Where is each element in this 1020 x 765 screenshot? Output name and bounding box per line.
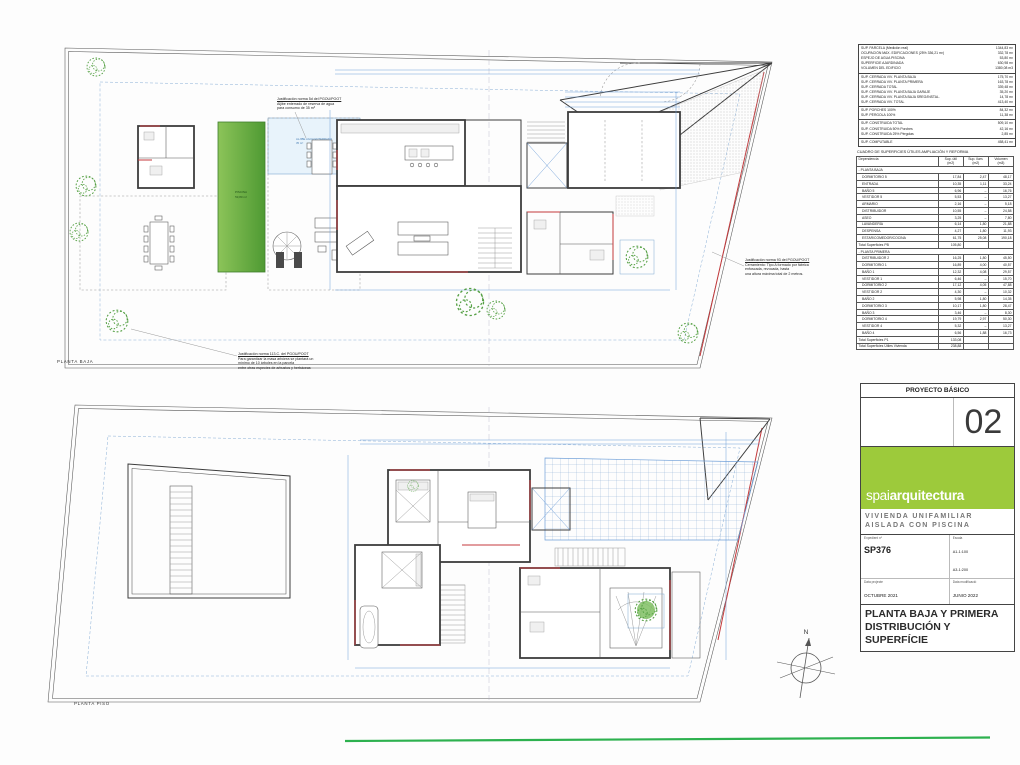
areas-row: VESTIDOR 45,32–13,27 (857, 323, 1014, 330)
note-trees-body: Para garantizar la masa arbórea se plant… (238, 357, 313, 370)
logo-light: spai (866, 488, 890, 503)
note-pool-body: Aljibe enterrado de reserva de agua para… (277, 102, 334, 111)
summary-table: SUP. PARCELA (Medición real)1344,83 m²OC… (858, 44, 1016, 147)
areas-row: ESTAR/COMEDOR/COCINA61,7525,08190,18 (857, 235, 1014, 242)
areas-row: BAÑO 46,561,8816,73 (857, 330, 1014, 337)
areas-table-head: DependenciaSup. útil (m2)Sup. ilum. (m2)… (857, 156, 1014, 167)
areas-row: VESTIDOR 16,46–15,70 (857, 275, 1014, 282)
note-fence: Justificación norma 93 del PGOU/POOT Cer… (745, 258, 860, 277)
areas-row: BAÑO 56,96–16,76 (857, 187, 1014, 194)
sheet-number-cell: 02 (861, 398, 1014, 447)
areas-row: ARMARIO2,16–5,18 (857, 201, 1014, 208)
areas-row: BAÑO 112,324,0829,57 (857, 269, 1014, 276)
areas-row: BAÑO 33,46–8,30 (857, 309, 1014, 316)
bed (396, 480, 430, 522)
title-block-fields: Expedient nº SP376 Escala A1-1:100 A3-1:… (861, 535, 1014, 605)
summary-row: SUP. PÉRGOLA 100%11,38 m² (859, 113, 1015, 118)
areas-row: DORMITORIO 310,171,8028,47 (857, 302, 1014, 309)
plan-label-planta-baja: PLANTA BAJA (57, 359, 93, 364)
title-block: PROYECTO BÁSICO 02 spaiarquitectura VIVI… (860, 383, 1015, 652)
areas-row: DISTRIBUIDOR10,55–24,58 (857, 207, 1014, 214)
pool-label: PISCINA (235, 190, 247, 194)
svg-text:35 m³: 35 m³ (296, 141, 303, 145)
stair-upper (527, 122, 565, 142)
bed (382, 552, 422, 588)
bed-fan (610, 588, 662, 648)
summary-row: SUP. CONSTRUIDA 25% Pérgolas2,85 m² (859, 132, 1015, 137)
planta-baja-drawing: PISCINA 53,80 m² ALJIBE AGUA ENTERRADO 3… (65, 48, 772, 368)
summary-group: SUP. CONSTRUIDA TOTAL509,10 m²SUP. CONST… (859, 120, 1015, 138)
areas-row: Total Superficies PB105,80 (857, 241, 1014, 248)
planta-piso-drawing (48, 405, 772, 702)
drawing-title: PLANTA BAJA Y PRIMERA DISTRIBUCIÓN Y SUP… (861, 605, 1014, 651)
parasol (273, 232, 302, 268)
field-scale: Escala A1-1:100 A3-1:200 (950, 535, 1014, 579)
logo-bold: arquitectura (890, 488, 964, 503)
areas-table-body: - PLANTA BAJADORMITORIO 517,842,4748,17E… (857, 167, 1014, 350)
areas-row: DORMITORIO 116,894,0040,57 (857, 262, 1014, 269)
field-date: Data projecte OCTUBRE 2021 (861, 579, 950, 604)
summary-group: SUP. PORCHES 100%84,32 m²SUP. PÉRGOLA 10… (859, 107, 1015, 120)
areas-row: Total Superficies Útiles Vivienda238,88 (857, 343, 1014, 350)
footer-accent-line (345, 738, 990, 742)
summary-row: SUP. CERRADA VIV. TOTAL413,40 m² (859, 100, 1015, 105)
areas-table: CUADRO DE SUPERFICIES ÚTILES AMPLIACIÓN … (856, 150, 1014, 350)
summary-group: SUP. COMPUTABLE458,41 m² (859, 139, 1015, 146)
areas-row: - PLANTA BAJA (857, 167, 1014, 174)
bed (468, 492, 496, 528)
summary-row: VOLUMEN DEL EDIFICIO1380,08 m3 (859, 66, 1015, 71)
logo: spaiarquitectura (866, 487, 964, 505)
plan-label-planta-piso: PLANTA PISO (74, 701, 110, 706)
logo-banner: spaiarquitectura (861, 447, 1014, 509)
north-arrow: N (777, 629, 835, 698)
areas-row: ASEO3,25–7,80 (857, 214, 1014, 221)
summary-group: SUP. PARCELA (Medición real)1344,83 m²OC… (859, 45, 1015, 74)
note-pool: Justificación norma 5d del PGOU/POOT Alj… (277, 97, 377, 111)
stair-run-h (555, 548, 625, 566)
areas-row: LAVANDERÍA6,141,8021,88 (857, 221, 1014, 228)
areas-row: VESTIDOR 24,30–10,32 (857, 289, 1014, 296)
areas-row: DORMITORIO 419,792,9750,30 (857, 316, 1014, 323)
areas-row: VESTIDOR 55,53–13,27 (857, 194, 1014, 201)
note-trees: Justificación norma 113.C. del PGOU/POOT… (238, 352, 368, 371)
svg-text:53,80 m²: 53,80 m² (235, 195, 247, 199)
areas-row: DORMITORIO 217,124,0547,88 (857, 282, 1014, 289)
north-label: N (804, 629, 809, 636)
field-modification: Data modificació JUNIO 2022 (950, 579, 1014, 604)
drawing-sheet: PISCINA 53,80 m² ALJIBE AGUA ENTERRADO 3… (0, 0, 1020, 765)
note-fence-body: Cerramiento: Tipo A formado por fábrica … (745, 263, 809, 276)
areas-table-title: CUADRO DE SUPERFICIES ÚTILES AMPLIACIÓN … (857, 150, 1014, 154)
title-block-header: PROYECTO BÁSICO (861, 384, 1014, 398)
areas-row: Total Superficies P1133,08 (857, 336, 1014, 343)
sheet-number: 02 (953, 398, 1014, 446)
areas-row: ENTRADA10,351,1133,24 (857, 180, 1014, 187)
project-name: VIVIENDA UNIFAMILIAR AISLADA CON PISCINA (861, 509, 1014, 535)
areas-row: DISTRIBUIDOR 216,251,8045,50 (857, 255, 1014, 262)
areas-row: DORMITORIO 517,842,4748,17 (857, 174, 1014, 181)
areas-row: - PLANTA PRIMERA (857, 248, 1014, 255)
summary-group: SUP. CERRADA VIV. PLANTA BAJA175,70 m²SU… (859, 74, 1015, 108)
summary-row: SUP. COMPUTABLE458,41 m² (859, 140, 1015, 145)
areas-row: DESPENSA4,271,8011,93 (857, 228, 1014, 235)
field-expedient: Expedient nº SP376 (861, 535, 950, 579)
areas-row: BAÑO 25,981,8014,35 (857, 296, 1014, 303)
